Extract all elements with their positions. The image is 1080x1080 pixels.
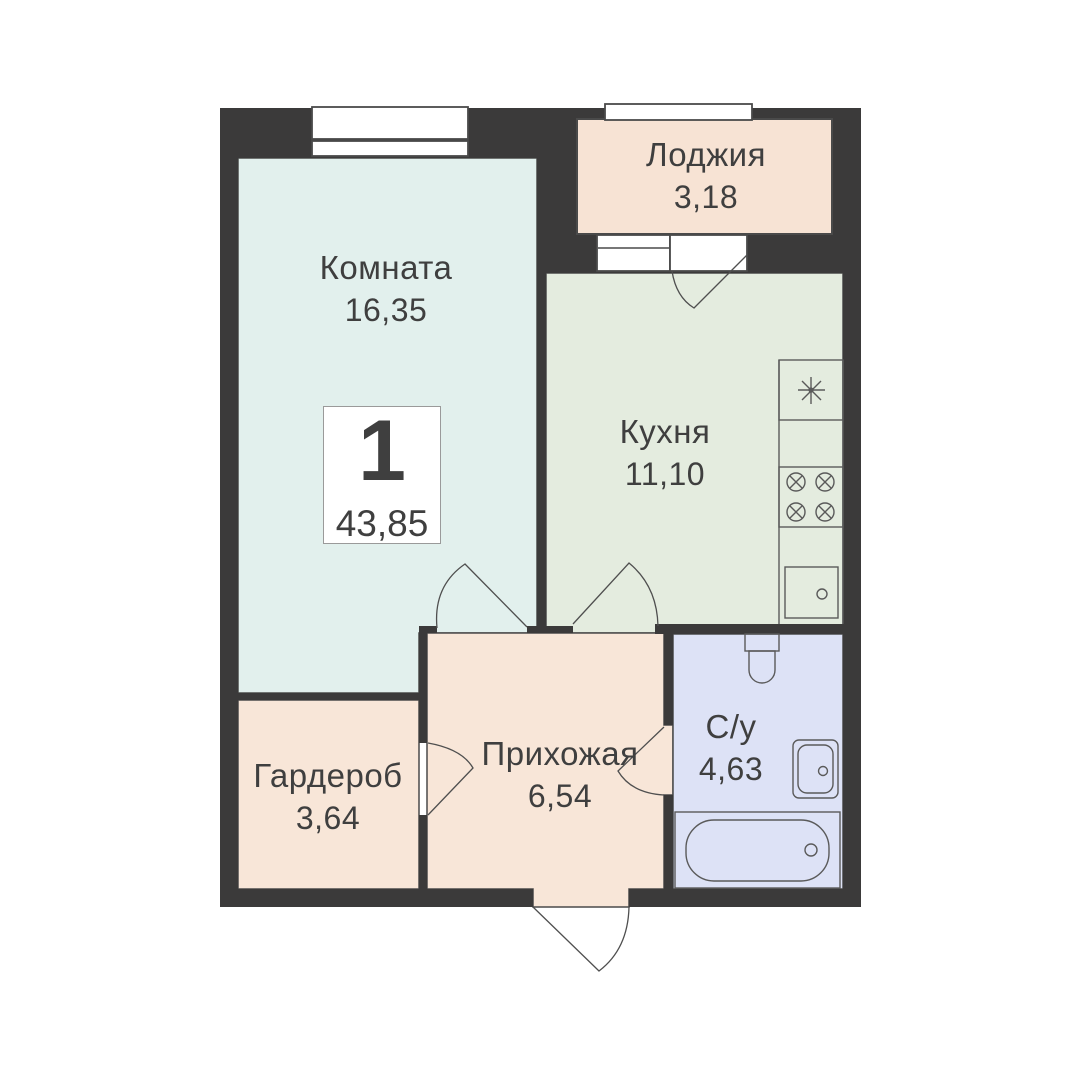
wall-kitchen-bathroom xyxy=(655,624,843,634)
wall-wardrobe-hallway-upper xyxy=(419,626,427,743)
room-name: С/у xyxy=(699,705,763,748)
wall-stub-living-door-left xyxy=(419,626,437,633)
room-label-living: Комната 16,35 xyxy=(320,246,453,332)
room-area: 6,54 xyxy=(482,775,639,818)
room-name: Кухня xyxy=(620,410,711,453)
wall-stub-kitchen-door-left xyxy=(546,626,573,633)
wall-bottom-right xyxy=(629,889,861,907)
unit-summary-box: 1 43,85 xyxy=(323,406,441,544)
room-name: Гардероб xyxy=(253,754,402,797)
room-name: Комната xyxy=(320,246,453,289)
room-area: 3,64 xyxy=(253,797,402,840)
room-name: Прихожая xyxy=(482,732,639,775)
floorplan-page: Комната 16,35 Лоджия 3,18 Кухня 11,10 Га… xyxy=(0,0,1080,1080)
room-area: 3,18 xyxy=(646,176,766,219)
wall-left xyxy=(220,108,238,907)
kitchen-window xyxy=(597,235,670,271)
room-label-kitchen: Кухня 11,10 xyxy=(620,410,711,496)
room-label-wardrobe: Гардероб 3,64 xyxy=(253,754,402,840)
room-area: 4,63 xyxy=(699,748,763,791)
wall-stub-living-door-right xyxy=(527,626,546,633)
balcony-door-panel xyxy=(670,235,747,271)
loggia-glazing xyxy=(605,104,752,120)
refrigerator-icon xyxy=(798,377,825,404)
living-window-outer xyxy=(312,107,468,139)
wall-bottom-left xyxy=(220,889,533,907)
wall-hallway-bathroom-upper xyxy=(664,634,673,725)
floorplan-drawing xyxy=(0,0,1080,1080)
room-label-hallway: Прихожая 6,54 xyxy=(482,732,639,818)
wall-living-kitchen xyxy=(537,158,546,633)
room-label-bathroom: С/у 4,63 xyxy=(699,705,763,791)
unit-total-area: 43,85 xyxy=(336,503,429,545)
room-area: 11,10 xyxy=(620,453,711,496)
room-label-loggia: Лоджия 3,18 xyxy=(646,133,766,219)
wall-wardrobe-hallway-lower xyxy=(419,815,427,889)
room-area: 16,35 xyxy=(320,289,453,332)
door-entrance xyxy=(533,907,629,971)
wall-living-wardrobe xyxy=(238,693,419,700)
unit-rooms-count: 1 xyxy=(358,409,406,493)
room-name: Лоджия xyxy=(646,133,766,176)
wall-hallway-bathroom-lower xyxy=(664,795,673,889)
living-window-inner xyxy=(312,141,468,156)
